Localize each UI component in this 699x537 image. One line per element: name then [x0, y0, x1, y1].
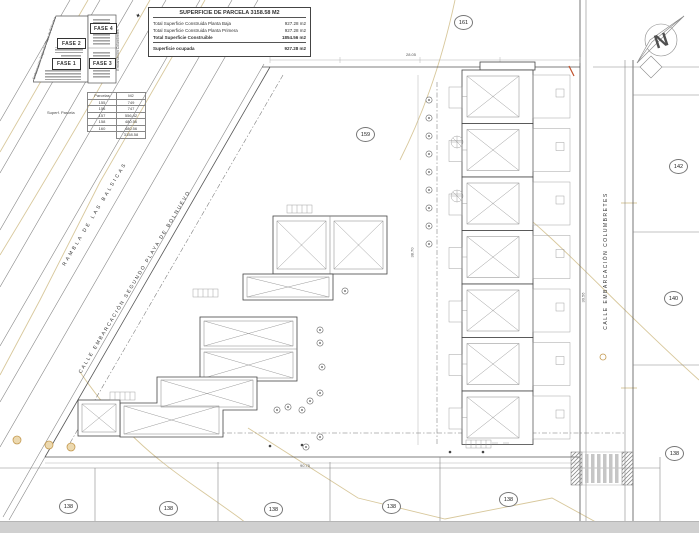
parcel-table-side-label: Superf. Parcela	[47, 110, 75, 115]
parcel-badge-140: 140	[664, 291, 683, 306]
phase-key-diagram: FASE 2 FASE 4 FASE 1 FASE 3 Embarcación …	[33, 7, 165, 93]
summary-row: Total Superficie Construida Planta Prime…	[153, 28, 306, 35]
right-street-group	[580, 0, 699, 521]
dim-label-top: 28.05	[406, 52, 416, 57]
summary-row-occupied: Superficie ocupada 927.28 m2	[153, 46, 306, 53]
north-arrow-icon: N	[637, 16, 684, 63]
summary-row-total: Total Superficie Construible 1854.56 m2	[153, 35, 306, 44]
summary-title: SUPERFICIE DE PARCELA 3158.58 M2	[153, 10, 306, 18]
parcel-badge-138: 138	[665, 446, 684, 461]
fase-3-label: FASE 3	[89, 58, 116, 69]
parcel-badge-138: 138	[159, 501, 178, 516]
fase-4-label: FASE 4	[90, 23, 117, 34]
parcel-badge-142: 142	[669, 159, 688, 174]
drawing-sheet: N FASE 2 FASE 4 FASE 1 FASE 3 Embarcació…	[0, 0, 699, 532]
parcel-badge-138: 138	[264, 502, 283, 517]
parcel-badge-138: 138	[382, 499, 401, 514]
right-building-row	[449, 62, 570, 448]
fase-1-label: FASE 1	[52, 58, 81, 70]
street-label-calle-e: CALLE EMBARCACIÓN COLUMBRETES	[603, 171, 609, 351]
parcel-badge-138: 138	[59, 499, 78, 514]
dim-label-right: 30.56	[581, 292, 586, 302]
north-letter: N	[652, 29, 672, 53]
key-right-street-label: Embarcación Columbretes	[116, 15, 120, 85]
parcel-badge-138: 138	[499, 492, 518, 507]
crosswalk	[571, 452, 633, 485]
sheet-bottom-band	[0, 521, 699, 533]
dim-label-left: 38.70	[410, 247, 415, 257]
dim-label-bottom: 90.75	[300, 463, 310, 468]
summary-row: Total Superficie Construida Planta Baja …	[153, 21, 306, 28]
fase-2-label: FASE 2	[57, 38, 86, 49]
parcel-badge-161: 161	[454, 15, 473, 30]
central-building-blocks	[78, 205, 387, 437]
parcel-badge-159: 159	[356, 127, 375, 142]
parcel-table: Parcelas M2 155 749 156 747 157 556.42 1…	[87, 92, 146, 139]
summary-table: SUPERFICIE DE PARCELA 3158.58 M2 Total S…	[148, 7, 311, 57]
